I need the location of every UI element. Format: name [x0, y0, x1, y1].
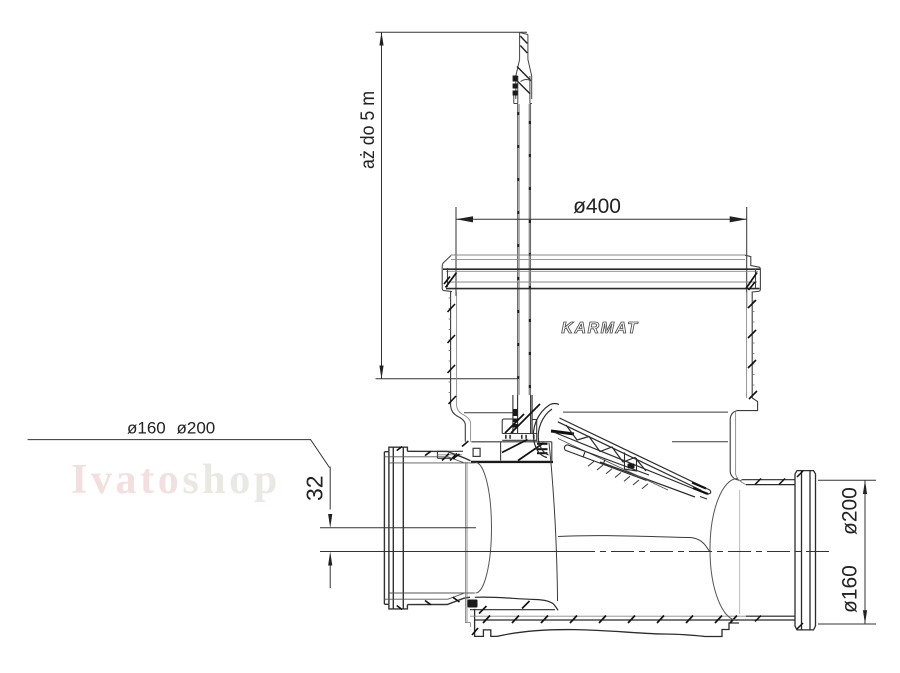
svg-text:KARMAT: KARMAT	[561, 320, 638, 337]
svg-text:ø160: ø160	[127, 419, 166, 438]
svg-text:ø160: ø160	[839, 565, 862, 613]
svg-text:ø400: ø400	[573, 195, 621, 218]
svg-text:ø200: ø200	[177, 419, 216, 438]
svg-text:32: 32	[302, 475, 328, 501]
svg-text:ø200: ø200	[839, 487, 862, 535]
svg-text:aż do 5 m: aż do 5 m	[358, 91, 379, 169]
svg-text:Ivatoshop: Ivatoshop	[71, 457, 281, 503]
